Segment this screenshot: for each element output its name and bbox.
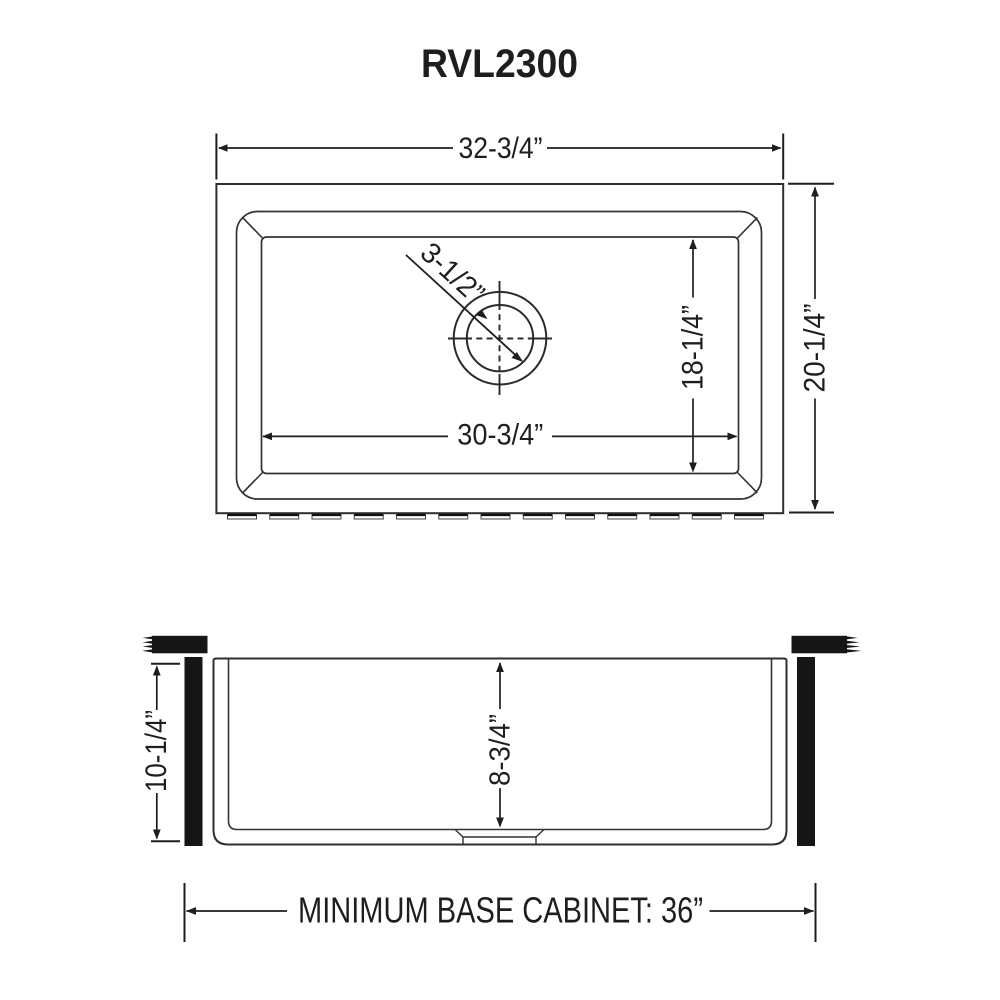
svg-text:30-3/4”: 30-3/4” (457, 419, 543, 452)
svg-text:10-1/4”: 10-1/4” (140, 710, 173, 792)
svg-text:MINIMUM BASE CABINET: 36”: MINIMUM BASE CABINET: 36” (298, 890, 703, 931)
svg-text:20-1/4”: 20-1/4” (799, 304, 832, 393)
svg-text:8-3/4”: 8-3/4” (485, 714, 517, 786)
svg-text:32-3/4”: 32-3/4” (459, 132, 543, 165)
svg-text:RVL2300: RVL2300 (421, 42, 578, 86)
svg-text:18-1/4”: 18-1/4” (677, 305, 710, 390)
